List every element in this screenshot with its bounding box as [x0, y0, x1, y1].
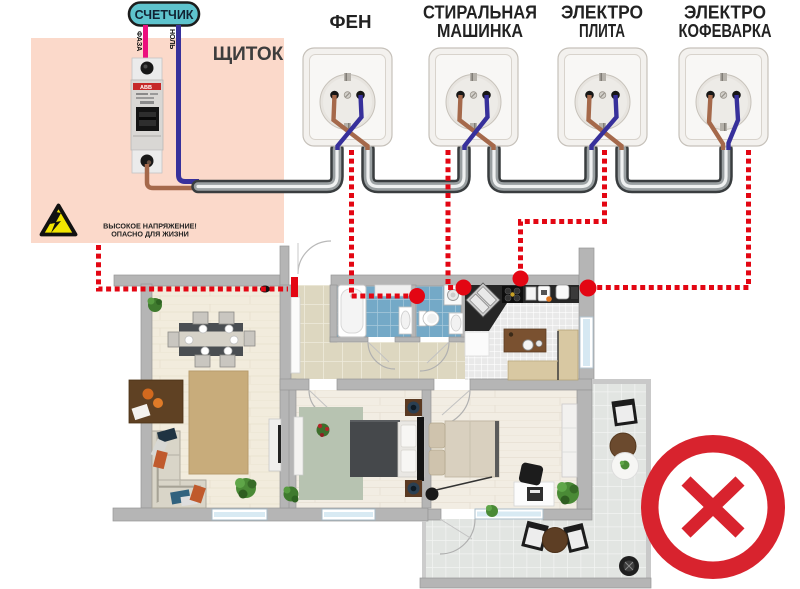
svg-text:СЧЕТЧИК: СЧЕТЧИК: [135, 8, 194, 22]
svg-text:ЩИТОК: ЩИТОК: [213, 44, 284, 65]
svg-text:ОПАСНО ДЛЯ ЖИЗНИ: ОПАСНО ДЛЯ ЖИЗНИ: [111, 230, 189, 239]
svg-text:ФАЗА: ФАЗА: [135, 31, 142, 51]
svg-text:ABB: ABB: [140, 85, 152, 91]
svg-text:ПЛИТА: ПЛИТА: [579, 21, 625, 41]
svg-text:ФЕН: ФЕН: [330, 12, 372, 32]
svg-text:НОЛЬ: НОЛЬ: [168, 29, 175, 49]
svg-text:МАШИНКА: МАШИНКА: [437, 21, 523, 41]
svg-text:ЭЛЕКТРО: ЭЛЕКТРО: [684, 3, 766, 23]
svg-text:ЭЛЕКТРО: ЭЛЕКТРО: [561, 3, 643, 23]
svg-text:СТИРАЛЬНАЯ: СТИРАЛЬНАЯ: [423, 3, 537, 23]
svg-text:КОФЕВАРКА: КОФЕВАРКА: [679, 21, 772, 41]
